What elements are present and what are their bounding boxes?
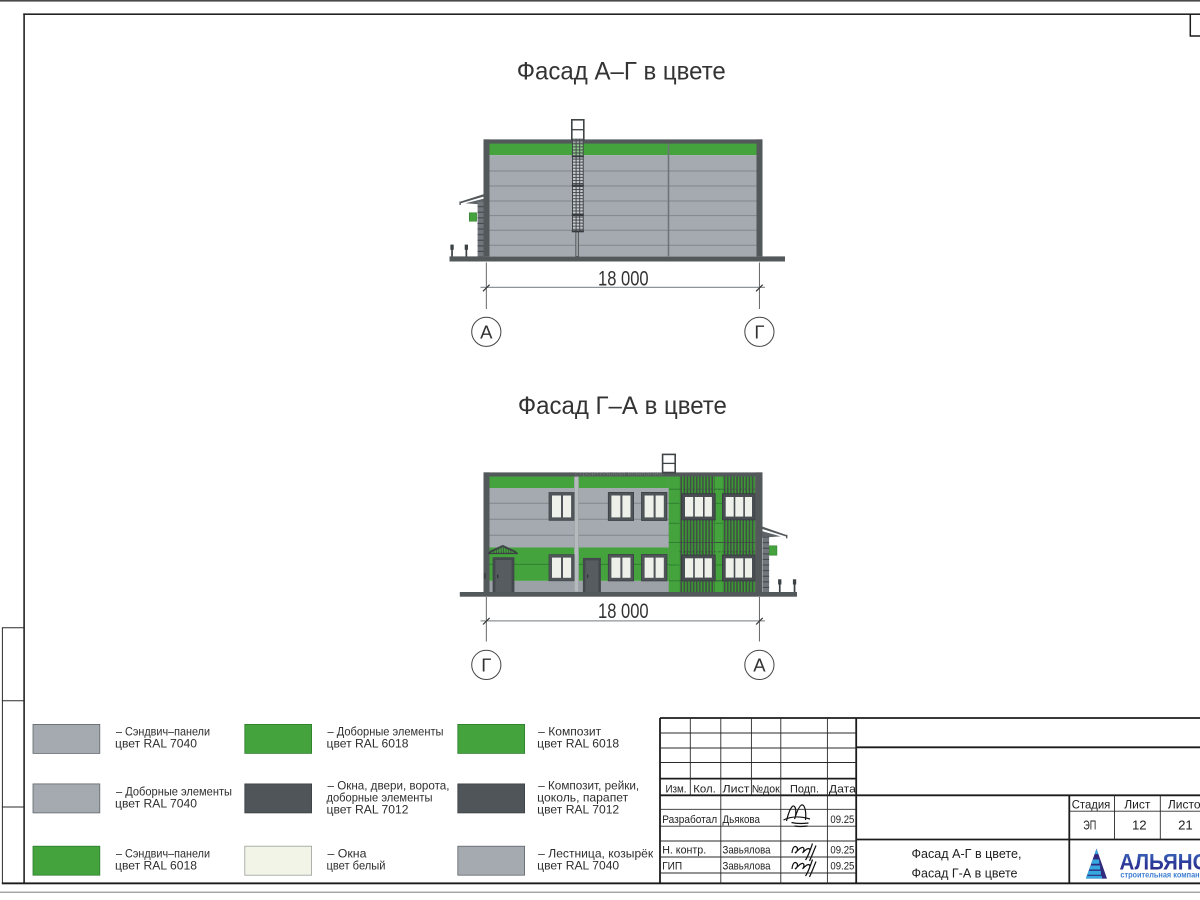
svg-text:цвет RAL 7012: цвет RAL 7012: [537, 803, 619, 817]
svg-text:Лист: Лист: [723, 783, 750, 795]
svg-text:Лист: Лист: [1124, 798, 1151, 812]
svg-text:21: 21: [1178, 818, 1193, 833]
svg-text:Подп.: Подп.: [790, 783, 819, 795]
svg-text:Г: Г: [481, 655, 491, 676]
svg-text:Дьякова: Дьякова: [723, 814, 761, 826]
svg-text:ГИП: ГИП: [662, 860, 682, 872]
svg-text:Завьялова: Завьялова: [723, 844, 771, 856]
svg-text:09.25: 09.25: [830, 860, 854, 872]
svg-text:09.25: 09.25: [830, 814, 854, 826]
svg-text:Фасад Г–А в цвете: Фасад Г–А в цвете: [518, 392, 727, 420]
svg-text:Г: Г: [754, 322, 764, 343]
svg-text:Фасад Г-А в цвете: Фасад Г-А в цвете: [912, 865, 1018, 880]
svg-text:Н. контр.: Н. контр.: [662, 844, 706, 856]
svg-text:цвет RAL 7040: цвет RAL 7040: [115, 797, 197, 811]
svg-text:12: 12: [1132, 818, 1147, 833]
svg-text:цвет RAL 7040: цвет RAL 7040: [115, 736, 197, 750]
svg-text:цвет RAL 6018: цвет RAL 6018: [537, 736, 619, 750]
svg-text:Изм.: Изм.: [666, 783, 687, 795]
svg-text:А: А: [480, 322, 493, 343]
svg-text:№док: №док: [752, 783, 780, 795]
svg-text:ЭП: ЭП: [1083, 818, 1096, 833]
svg-text:Дата: Дата: [829, 783, 856, 795]
svg-text:18 000: 18 000: [598, 267, 649, 290]
svg-text:цвет RAL 7012: цвет RAL 7012: [327, 803, 409, 817]
svg-text:А: А: [753, 655, 766, 676]
svg-text:18 000: 18 000: [598, 600, 649, 623]
svg-text:строительная компания: строительная компания: [1120, 871, 1200, 880]
svg-text:Листов: Листов: [1168, 798, 1200, 812]
svg-text:цвет RAL 6018: цвет RAL 6018: [115, 859, 197, 873]
svg-text:09.25: 09.25: [830, 844, 854, 856]
svg-text:цвет RAL 6018: цвет RAL 6018: [327, 736, 409, 750]
svg-text:Разработал: Разработал: [662, 814, 717, 826]
svg-text:цвет RAL 7040: цвет RAL 7040: [537, 859, 619, 873]
svg-text:Завьялова: Завьялова: [723, 860, 771, 872]
svg-text:Кол.: Кол.: [693, 783, 716, 795]
svg-text:Фасад А-Г в цвете,: Фасад А-Г в цвете,: [912, 846, 1022, 861]
svg-text:Фасад А–Г в цвете: Фасад А–Г в цвете: [517, 58, 726, 86]
svg-text:строительная компания: строительная компания: [575, 471, 663, 477]
svg-text:Стадия: Стадия: [1072, 798, 1111, 812]
svg-text:цвет белый: цвет белый: [327, 859, 386, 873]
